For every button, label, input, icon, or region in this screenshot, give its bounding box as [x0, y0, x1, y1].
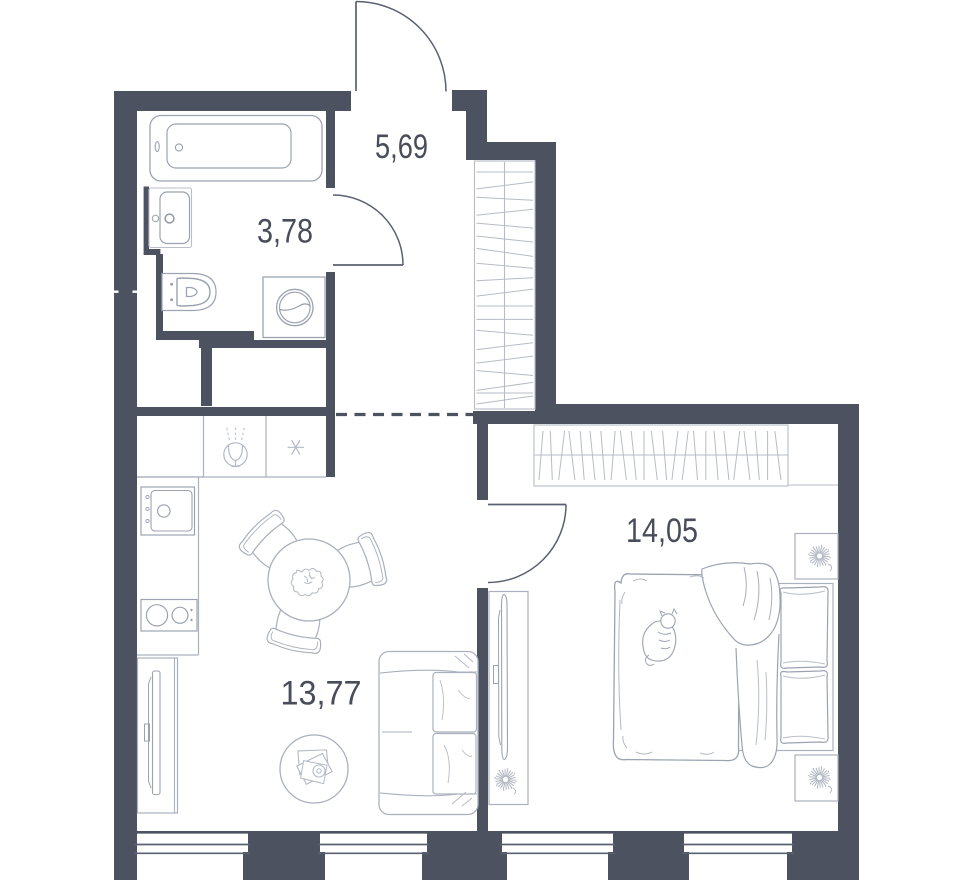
svg-text:5,69: 5,69: [375, 128, 428, 166]
svg-text:13,77: 13,77: [281, 675, 362, 713]
svg-text:14,05: 14,05: [626, 512, 698, 550]
svg-text:3,78: 3,78: [257, 213, 313, 251]
